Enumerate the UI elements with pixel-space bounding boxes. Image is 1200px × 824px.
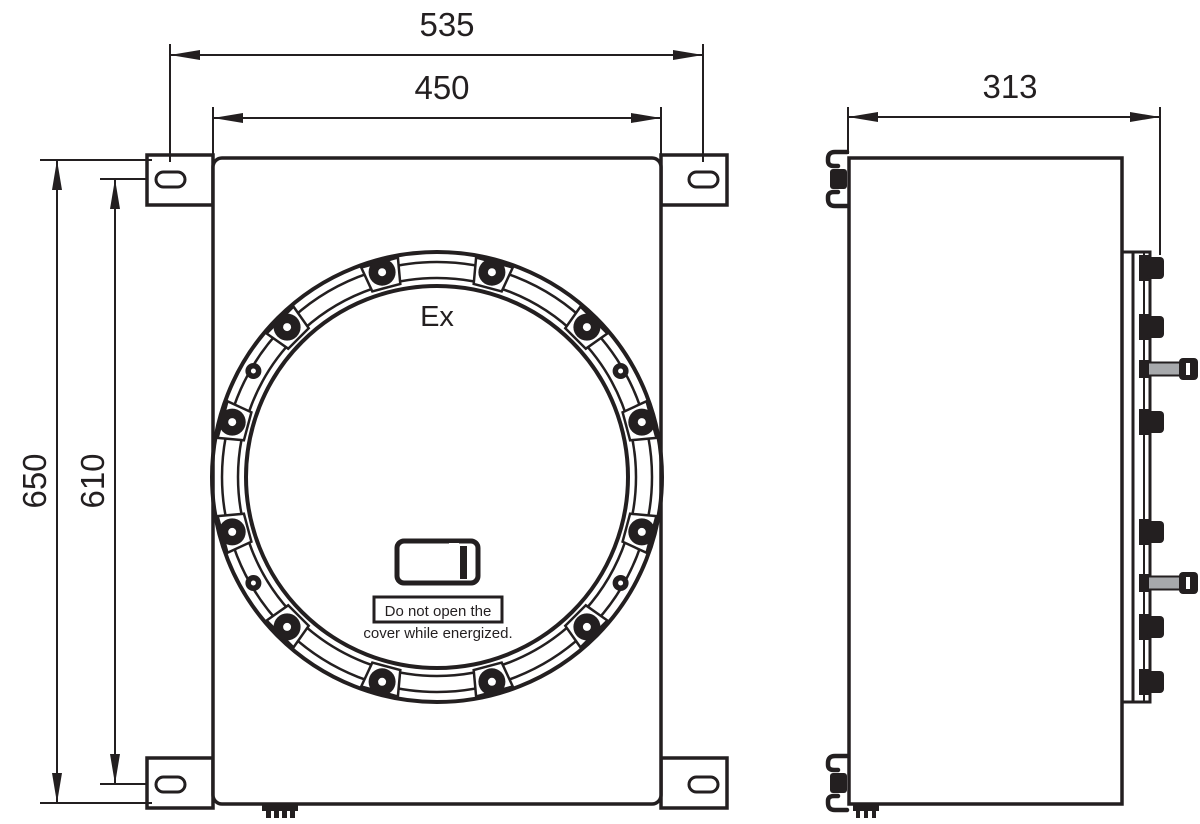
side-bracket-bottom [828,756,847,810]
nameplate [397,541,478,583]
nameplate-notch [449,543,459,552]
grounding-terminal-rib [282,811,287,818]
side-view [828,152,1198,818]
dimension-hole-spacing: 610 [74,179,147,784]
side-pin-shaft [1148,577,1181,590]
mounting-slot-top-left [156,172,185,187]
enclosure-body-side [849,158,1122,804]
arrowhead-top [52,160,62,190]
dimension-value-overall-height: 650 [16,453,53,508]
dimension-value-body-width: 450 [414,69,469,106]
grounding-terminal-rib [872,811,876,818]
arrowhead-right [631,113,661,123]
side-bracket-hook [828,192,847,206]
cover-bolt-hole [378,268,386,276]
cover-bolt-hole [283,323,291,331]
side-pin-shaft [1148,363,1181,376]
grounding-terminal-front [262,804,298,818]
nameplate-divider [460,546,467,579]
warning-label-line1: Do not open the [385,603,492,620]
side-bracket-bolt [830,773,847,793]
arrowhead-left [170,50,200,60]
mounting-slot-top-right [689,172,718,187]
grounding-terminal-rib [266,811,271,818]
side-bolt-head [1147,411,1164,433]
arrowhead-bottom [110,754,120,784]
side-bolt-head [1147,616,1164,638]
grounding-terminal-side [853,804,879,818]
cover-bolt-hole [583,623,591,631]
side-bolt-head [1147,316,1164,338]
side-bolt-head [1147,521,1164,543]
cover-bolt-hole [583,323,591,331]
cover-bolt-hole [378,678,386,686]
grounding-terminal-rib [274,811,279,818]
dimension-value-hole-spacing: 610 [74,453,111,508]
front-view: Ex Do not open the cover while energized… [147,155,727,818]
arrowhead-right [1130,112,1160,122]
grounding-terminal-rib [290,811,295,818]
grounding-terminal-body [853,804,879,811]
cover-bolt-hole [638,528,646,536]
arrowhead-left [213,113,243,123]
arrowhead-bottom [52,773,62,803]
arrowhead-left [848,112,878,122]
grounding-terminal-rib [864,811,868,818]
side-bracket-top [828,152,847,206]
technical-drawing-canvas: Ex Do not open the cover while energized… [0,0,1200,824]
grounding-terminal-rib [856,811,860,818]
cover-bolt-hole [228,418,236,426]
enclosure-body-front [213,158,661,804]
dimension-value-overall-width: 535 [419,6,474,43]
side-bracket-hook [828,756,847,770]
mounting-slot-bottom-left [156,777,185,792]
dimension-body-width: 450 [213,69,661,156]
cover-bolt-hole [283,623,291,631]
side-bracket-hook [828,796,847,810]
arrowhead-right [673,50,703,60]
cover-bolt-hole [488,268,496,276]
cover-bolt-hole [638,418,646,426]
alignment-pin-hole [618,369,623,374]
grounding-terminal-body [262,804,298,811]
warning-label: Do not open the cover while energized. [363,597,512,642]
side-bracket-hook [828,152,847,166]
side-bracket-bolt [830,169,847,189]
dimension-value-depth: 313 [982,68,1037,105]
arrowhead-top [110,179,120,209]
alignment-pin-hole [251,369,256,374]
side-bolt-head [1147,257,1164,279]
warning-label-line2: cover while energized. [363,625,512,642]
mounting-slot-bottom-right [689,777,718,792]
cover-bolt-hole [488,678,496,686]
side-bolt-head [1147,671,1164,693]
alignment-pin-hole [618,581,623,586]
ex-marking: Ex [420,301,454,333]
cover-bolt-hole [228,528,236,536]
alignment-pin-hole [251,581,256,586]
side-pin-head-slot [1186,577,1190,589]
side-pin-head-slot [1186,363,1190,375]
